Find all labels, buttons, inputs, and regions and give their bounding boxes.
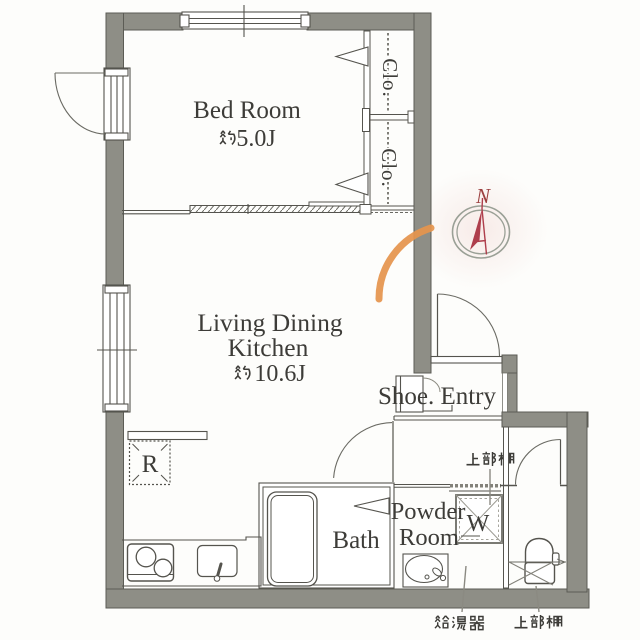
svg-text:Clo.: Clo. [378,58,402,98]
svg-text:W: W [467,511,490,537]
svg-text:5.0J: 5.0J [236,126,275,152]
svg-text:N: N [475,184,491,208]
svg-text:Powder: Powder [391,498,466,525]
svg-text:Bed Room: Bed Room [193,97,301,124]
svg-text:Clo.: Clo. [377,148,401,188]
svg-text:Room: Room [399,524,459,551]
svg-text:R: R [142,451,159,478]
svg-text:Bath: Bath [332,527,380,554]
svg-text:10.6J: 10.6J [254,361,305,387]
svg-text:Kitchen: Kitchen [228,333,309,362]
svg-text:Shoe. Entry: Shoe. Entry [378,383,497,410]
